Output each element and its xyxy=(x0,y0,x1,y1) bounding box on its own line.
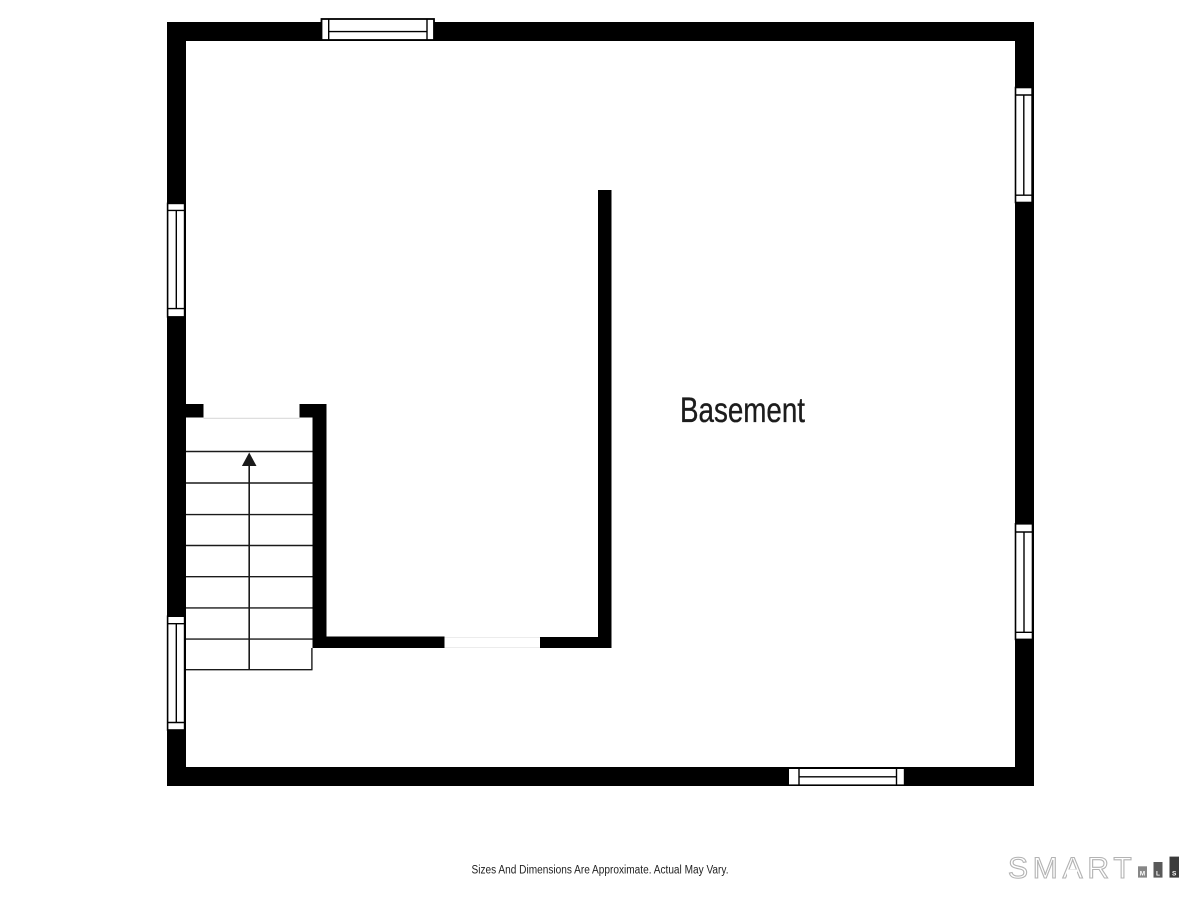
svg-text:Sizes And Dimensions Are Appro: Sizes And Dimensions Are Approximate. Ac… xyxy=(472,865,729,877)
svg-text:SMART: SMART xyxy=(1008,852,1136,885)
svg-text:M: M xyxy=(1140,871,1145,878)
svg-text:Basement: Basement xyxy=(680,390,805,430)
svg-text:L: L xyxy=(1156,871,1160,878)
svg-text:S: S xyxy=(1172,871,1177,878)
